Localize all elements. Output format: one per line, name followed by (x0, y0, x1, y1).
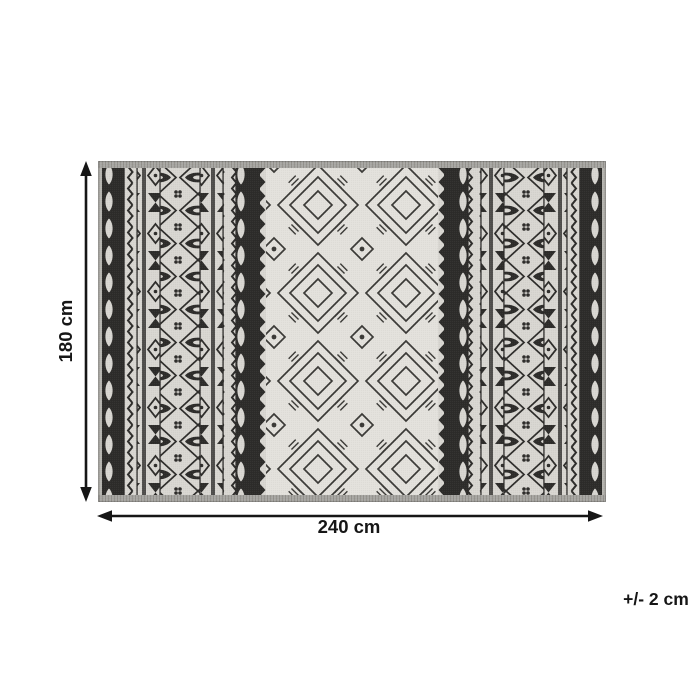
arrowhead-up-icon (80, 161, 92, 176)
arrowhead-down-icon (80, 487, 92, 502)
height-dimension-label: 180 cm (55, 300, 76, 363)
rug-image (98, 161, 606, 502)
tolerance-label: +/- 2 cm (623, 589, 689, 609)
arrowhead-right-icon (588, 510, 603, 522)
width-dimension-label: 240 cm (318, 516, 381, 537)
height-arrow (80, 161, 92, 502)
rug-weave-texture (98, 161, 606, 502)
diagram-svg: 180 cm 240 cm +/- 2 cm (0, 0, 700, 700)
arrowhead-left-icon (97, 510, 112, 522)
product-dimension-diagram: 180 cm 240 cm +/- 2 cm (0, 0, 700, 700)
